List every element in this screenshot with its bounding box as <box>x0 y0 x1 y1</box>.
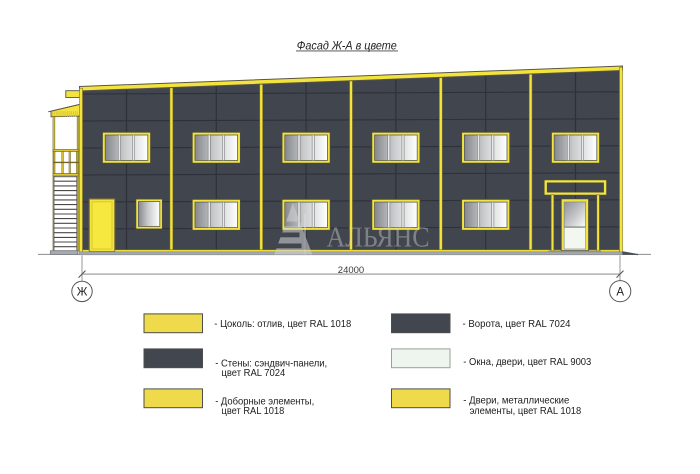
svg-text:- Цоколь: отлив, цвет RAL 1018: - Цоколь: отлив, цвет RAL 1018 <box>214 319 351 330</box>
svg-text:Ж: Ж <box>77 287 88 299</box>
svg-text:- Ворота, цвет RAL 7024: - Ворота, цвет RAL 7024 <box>463 319 571 330</box>
svg-text:- Окна, двери, цвет RAL 9003: - Окна, двери, цвет RAL 9003 <box>463 357 591 368</box>
svg-text:А: А <box>616 286 624 298</box>
svg-text:цвет RAL 7024: цвет RAL 7024 <box>222 368 286 379</box>
svg-text:элементы, цвет RAL 1018: элементы, цвет RAL 1018 <box>470 406 582 417</box>
svg-text:- Двери, металлические: - Двери, металлические <box>463 395 569 406</box>
svg-text:цвет RAL 1018: цвет RAL 1018 <box>222 406 285 417</box>
svg-text:24000: 24000 <box>338 265 364 276</box>
svg-text:АЛЬЯНС: АЛЬЯНС <box>327 222 430 253</box>
